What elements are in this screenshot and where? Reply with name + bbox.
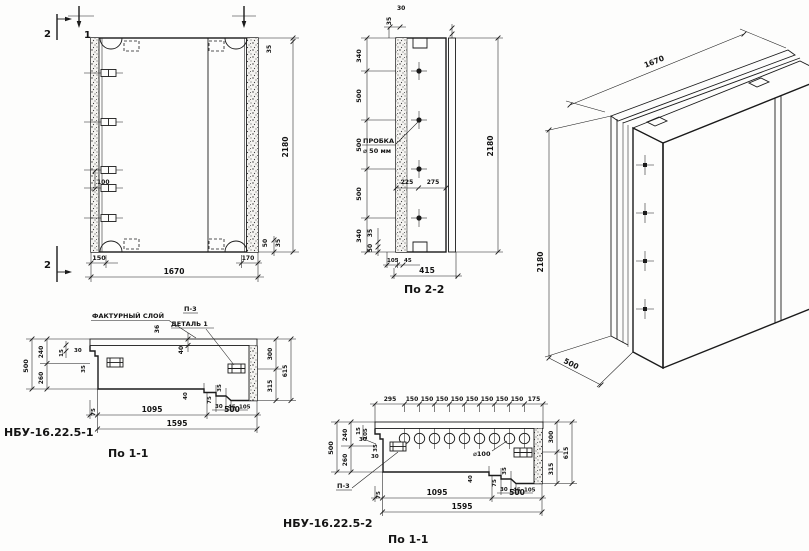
panel-1-label: НБУ-16.22.5-1	[4, 426, 93, 439]
section-1-1-panel-1: ФАКТУРНЫЙ СЛОЙ П-3 ДЕТАЛЬ 1 36 40 500 24…	[4, 305, 296, 460]
dim-label: 50	[367, 244, 374, 252]
dim-label: 35	[386, 17, 393, 25]
dim-label: 1095	[142, 405, 163, 414]
hole-diameter-label: ⌀100	[473, 450, 491, 458]
p3-label: П-3	[337, 482, 350, 490]
dim-label: 150	[496, 396, 509, 403]
dim-label: 500	[562, 356, 580, 371]
dim-label: 225	[401, 179, 414, 186]
dim-label: 260	[342, 454, 349, 467]
detail-label: ДЕТАЛЬ 1	[171, 320, 208, 328]
dim-label: 40	[468, 475, 474, 483]
facing-layer-label: ФАКТУРНЫЙ СЛОЙ	[92, 311, 164, 320]
dim-label: 105	[239, 405, 251, 411]
dim-label: 2180	[536, 252, 545, 273]
dim-label: 150	[421, 396, 434, 403]
dim-label: 30	[371, 454, 379, 460]
section-marker-2-top: 2	[44, 29, 51, 40]
isometric-view: 1670 2180 500	[536, 29, 809, 387]
dim-label: 2180	[281, 137, 290, 158]
dim-label: 75	[376, 491, 382, 499]
dim-label: 50	[262, 239, 269, 247]
dim-label: 30	[74, 348, 82, 354]
dim-label: 240	[38, 346, 45, 359]
section-marker-2-bottom: 2	[44, 260, 51, 271]
dim-label: 1095	[427, 488, 448, 497]
dim-label: 35	[373, 444, 379, 452]
plug-label: ПРОБКА	[363, 137, 394, 145]
panel-2-title: По 1-1	[388, 533, 428, 546]
p2-anchors	[390, 442, 532, 457]
dim-label: 2180	[486, 136, 495, 157]
dim-label: 75	[492, 479, 498, 487]
dim-label: 260	[38, 372, 45, 385]
dim-label: 340	[355, 229, 363, 243]
dim-label: 300	[548, 431, 555, 444]
dim-label: 105	[524, 488, 536, 494]
dim-label: 45	[228, 405, 236, 411]
dim-label: 150	[511, 396, 524, 403]
dim-label: 150	[466, 396, 479, 403]
dim-label: 175	[528, 396, 541, 403]
dim-label: 500	[355, 138, 363, 152]
front-elevation-view: 2 1 2 100 150 170 1670 2180 35 50 35	[44, 6, 299, 282]
dim-label: 500	[22, 359, 30, 373]
dim-label: 15	[356, 427, 362, 435]
dim-label: 75	[91, 408, 97, 416]
iso-panel	[611, 50, 809, 368]
dim-label: 30	[215, 404, 223, 410]
dim-label: 150	[481, 396, 494, 403]
dim-label: 35	[275, 239, 282, 247]
dim-label: 240	[342, 429, 349, 442]
dim-label: 170	[242, 255, 255, 262]
dim-label: 500	[355, 187, 363, 201]
dim-label: 45	[513, 488, 521, 494]
dim-label: 275	[427, 179, 440, 186]
dim-label: 1670	[164, 267, 185, 276]
dim-label: 35	[502, 467, 508, 475]
p2-top-dim-chain: 295 150 150 150 150 150 150 150 150 175	[370, 396, 548, 422]
section-1-1-panel-2: П-3 ⌀100 295 150 150 150 150 150 150 150…	[283, 396, 577, 546]
sec22-plugs	[411, 62, 427, 227]
p1-anchors	[107, 358, 245, 373]
dim-label: 150	[92, 254, 106, 262]
dim-label: 300	[267, 348, 274, 361]
panel-1-title: По 1-1	[108, 447, 148, 460]
p1-callouts: ФАКТУРНЫЙ СЛОЙ П-3 ДЕТАЛЬ 1 36 40	[91, 305, 234, 365]
dim-label: 1595	[167, 419, 188, 428]
dim-label: 150	[451, 396, 464, 403]
dim-label: 295	[384, 396, 397, 403]
sec22-outline	[396, 38, 456, 252]
dim-label: 500	[327, 441, 335, 455]
dim-label: 150	[406, 396, 419, 403]
p3-label: П-3	[184, 305, 197, 313]
iso-plug-marks	[636, 155, 654, 319]
dim-label: 615	[563, 447, 570, 460]
dim-label: 15	[59, 349, 65, 357]
front-plug-marks	[84, 70, 123, 222]
p2-holes	[399, 428, 529, 449]
dim-label: 415	[419, 266, 435, 275]
section-marker-1: 1	[84, 30, 91, 41]
dim-label: 105	[387, 258, 399, 264]
dim-label: 36	[154, 325, 161, 333]
dim-label: 45	[404, 258, 412, 264]
dim-label: 150	[436, 396, 449, 403]
panel-2-label: НБУ-16.22.5-2	[283, 517, 372, 530]
blueprint-svg: 2 1 2 100 150 170 1670 2180 35 50 35	[0, 0, 809, 551]
dim-label: 40	[178, 346, 185, 354]
front-dimensions: 100 150 170 1670 2180 35 50 35	[85, 36, 299, 282]
dim-label: 100	[97, 179, 110, 186]
dim-label: 315	[267, 380, 274, 393]
dim-label: 35	[266, 45, 273, 53]
dim-label: 35	[81, 365, 87, 373]
dim-label: 30	[500, 487, 508, 493]
drawing-sheet: 2 1 2 100 150 170 1670 2180 35 50 35	[0, 0, 809, 551]
section-2-2-view: ПРОБКА ⌀ 50 мм 340 500 500 500 340 2180 …	[355, 5, 503, 296]
dim-label: 35	[367, 229, 374, 237]
p2-callouts: П-3 ⌀100	[336, 441, 507, 490]
dim-label: 1595	[452, 502, 473, 511]
dim-label: 340	[355, 49, 363, 63]
dim-label: 35	[217, 384, 223, 392]
sec22-plug-callout: ПРОБКА ⌀ 50 мм	[362, 121, 419, 155]
dim-label: 75	[207, 396, 213, 404]
dim-label: 315	[548, 463, 555, 476]
section-2-2-title: По 2-2	[404, 283, 444, 296]
dim-label: 40	[183, 392, 189, 400]
dim-label: 615	[282, 365, 289, 378]
dim-label: 30	[397, 5, 405, 12]
dim-label: 500	[355, 89, 363, 103]
